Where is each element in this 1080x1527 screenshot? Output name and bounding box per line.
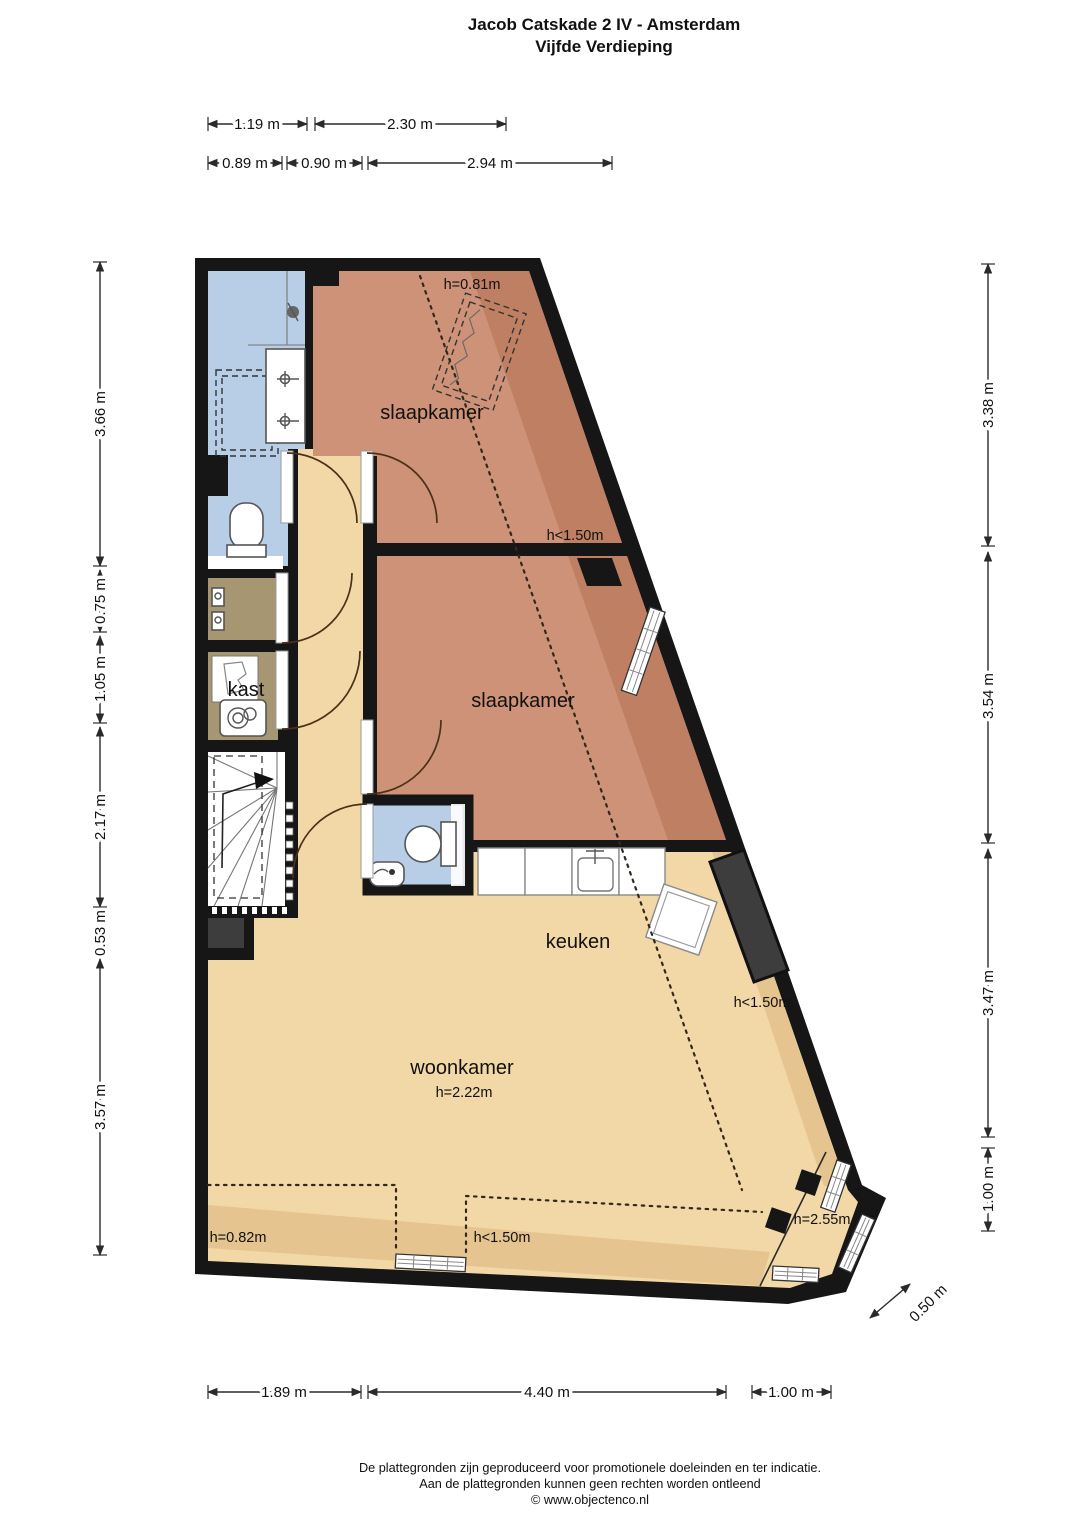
dim-top-090: 0.90 m [301,155,347,172]
note-h255: h=2.55m [794,1212,851,1228]
stairwell-floor [208,752,285,906]
room-label-living: woonkamer [409,1057,514,1079]
dimensions-left: 3.66 m 0.75 m 1.05 m 2.17 m 0.53 m 3.57 … [92,262,109,1255]
meter-icon-1 [212,588,224,606]
wall-notch-top [313,265,339,286]
footer-line-1: De plattegronden zijn geproduceerd voor … [359,1461,821,1475]
wall-notch-bathroom [195,455,228,496]
footer-line-2: Aan de plattegronden kunnen geen rechten… [419,1477,760,1491]
note-h150-bedroom-top: h<1.50m [547,528,604,544]
window-bay-3 [772,1266,819,1282]
dim-left-105: 1.05 m [92,656,109,702]
room-label-closet: kast [228,679,265,701]
dim-right-347: 3.47 m [980,970,997,1016]
washbasin-small-bath [370,862,404,886]
dim-left-217: 2.17 m [92,794,109,840]
meter-icon-2 [212,612,224,630]
note-h081: h=0.81m [444,277,501,293]
window-bottom-left [395,1254,466,1272]
note-h150-kitchen: h<1.50m [734,995,791,1011]
dim-top-230: 2.30 m [387,116,433,133]
dim-top-119: 1.19 m [234,116,280,133]
basin-drain-icon [389,869,395,875]
dim-right-338: 3.38 m [980,382,997,428]
toilet-tank-small-bath [441,822,456,866]
dim-left-366: 3.66 m [92,391,109,437]
footer-credit: © www.objectenco.nl [531,1493,649,1507]
dim-bottom-100: 1.00 m [768,1384,814,1401]
dim-top-089: 0.89 m [222,155,268,172]
dimensions-right: 3.38 m 3.54 m 3.47 m 1.00 m 0.50 m [870,264,997,1326]
room-label-bedroom-middle: slaapkamer [471,690,575,712]
room-label-bedroom-top: slaapkamer [380,402,484,424]
plan-subtitle: Vijfde Verdieping [535,37,673,56]
dim-right-100: 1.00 m [980,1166,997,1212]
floorplan-page: Jacob Catskade 2 IV - Amsterdam Vijfde V… [0,0,1080,1527]
dim-right-354: 3.54 m [980,673,997,719]
plan-title: Jacob Catskade 2 IV - Amsterdam [468,15,740,34]
dim-top-294: 2.94 m [467,155,513,172]
toilet-base-top-bath [227,545,266,557]
dimensions-top: 1.19 m 2.30 m 0.89 m 0.90 m 2.94 m [208,116,612,172]
dim-bottom-440: 4.40 m [524,1384,570,1401]
dimensions-bottom: 1.89 m 4.40 m 1.00 m [208,1384,831,1401]
dim-left-053: 0.53 m [92,910,109,956]
chimney-left-inner [208,918,244,948]
wc-shelf [208,556,283,569]
dim-left-075: 0.75 m [92,578,109,624]
dim-bottom-189: 1.89 m [261,1384,307,1401]
kitchen-counter [478,848,665,895]
toilet-bowl-top-bath [230,503,263,549]
dim-left-357: 3.57 m [92,1084,109,1130]
note-h150-living: h<1.50m [474,1230,531,1246]
note-h222: h=2.22m [436,1085,493,1101]
dim-bay-050: 0.50 m [906,1281,950,1325]
floor-plan: Jacob Catskade 2 IV - Amsterdam Vijfde V… [0,0,1080,1527]
note-h082: h=0.82m [210,1230,267,1246]
room-label-kitchen: keuken [546,931,611,953]
toilet-bowl-small-bath [405,826,441,862]
